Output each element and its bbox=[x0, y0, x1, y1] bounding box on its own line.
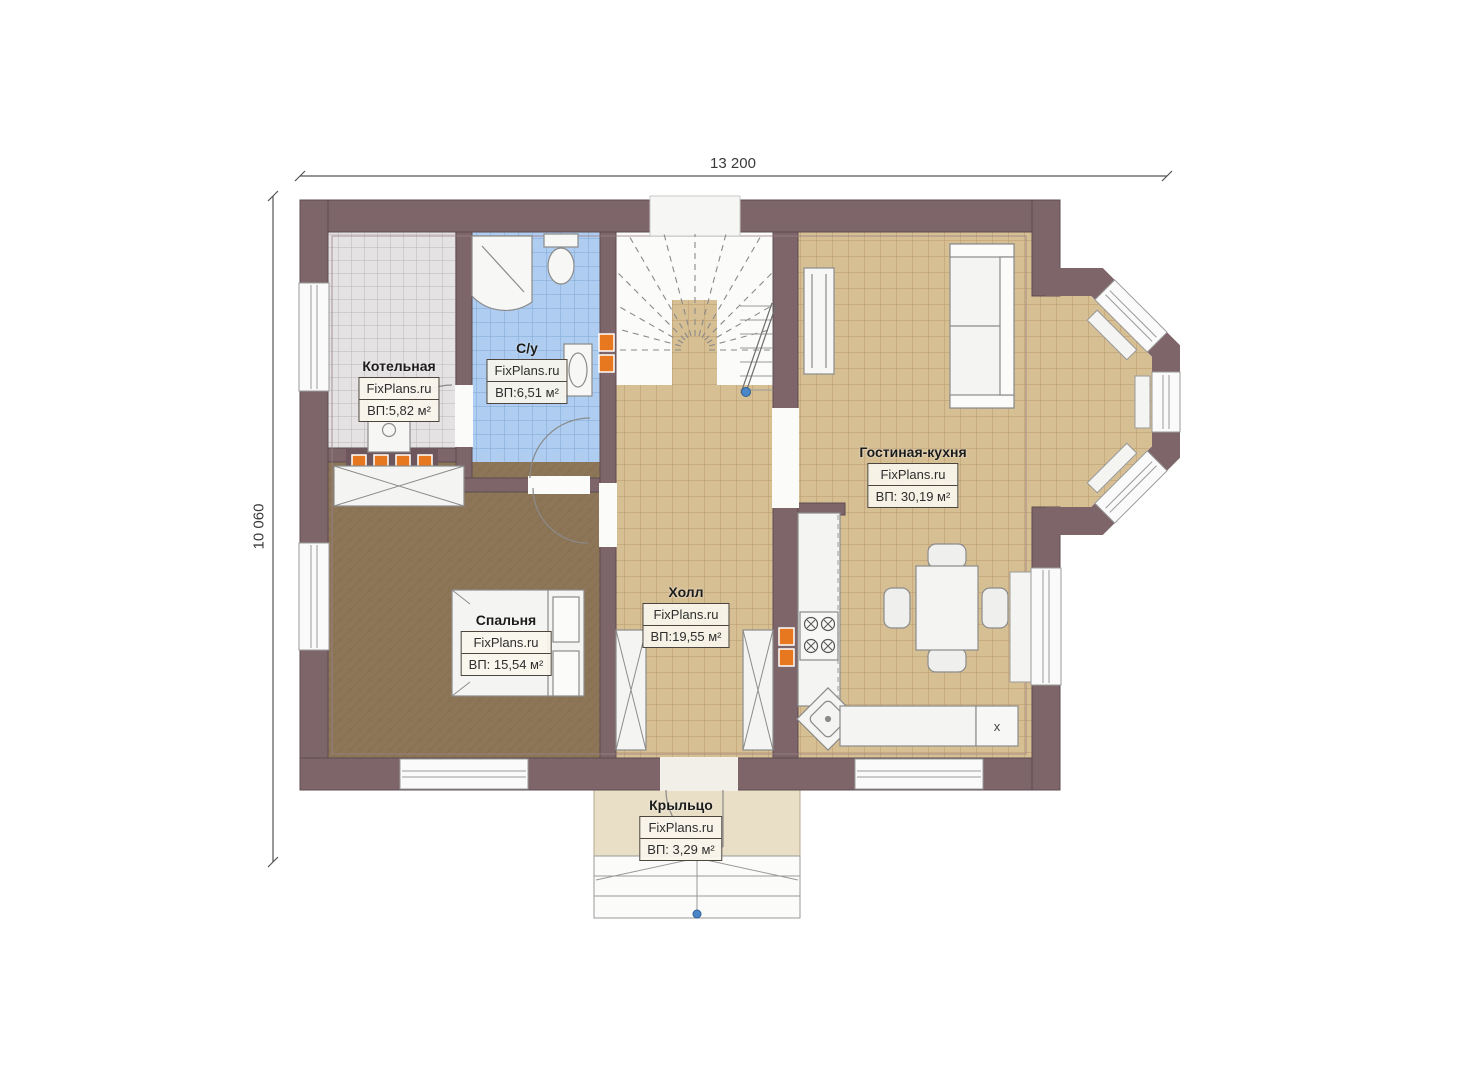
watermark-text: FixPlans.ru bbox=[487, 360, 566, 381]
room-title-porch: Крыльцо bbox=[639, 797, 722, 813]
shower-cabin bbox=[472, 236, 532, 310]
dimension-width-label: 13 200 bbox=[710, 155, 756, 172]
room-info-box-bedroom: FixPlans.ru ВП: 15,54 м² bbox=[461, 631, 552, 676]
table-top bbox=[916, 566, 978, 650]
door-opening-bedroom bbox=[599, 483, 617, 547]
room-label-boiler: Котельная FixPlans.ru ВП:5,82 м² bbox=[358, 358, 439, 422]
room-label-porch: Крыльцо FixPlans.ru ВП: 3,29 м² bbox=[639, 797, 722, 861]
watermark-text: FixPlans.ru bbox=[640, 817, 721, 838]
window-left-boiler bbox=[299, 283, 329, 391]
room-title-bedroom: Спальня bbox=[461, 612, 552, 628]
room-info-box-porch: FixPlans.ru ВП: 3,29 м² bbox=[639, 816, 722, 861]
room-info-box-hall: FixPlans.ru ВП:19,55 м² bbox=[642, 603, 729, 648]
room-label-bedroom: Спальня FixPlans.ru ВП: 15,54 м² bbox=[461, 612, 552, 676]
window-right-kitchen bbox=[1010, 568, 1061, 685]
passage-hall-living bbox=[772, 408, 799, 508]
wardrobe-bedroom bbox=[334, 466, 464, 506]
room-info-box-boiler: FixPlans.ru ВП:5,82 м² bbox=[358, 377, 439, 422]
kitchen-counter-left bbox=[798, 513, 840, 706]
chair-top bbox=[928, 544, 966, 568]
kitchen-counter-bottom bbox=[840, 706, 976, 746]
sofa bbox=[950, 244, 1014, 408]
room-area-value: ВП: 30,19 м² bbox=[869, 485, 958, 507]
watermark-text: FixPlans.ru bbox=[359, 378, 438, 399]
dimension-height-label: 10 060 bbox=[251, 492, 268, 562]
room-label-bathroom: С/у FixPlans.ru ВП:6,51 м² bbox=[486, 340, 567, 404]
room-area-value: ВП: 15,54 м² bbox=[462, 653, 551, 675]
room-area-value: ВП:5,82 м² bbox=[359, 399, 438, 421]
room-title-living-kitchen: Гостиная-кухня bbox=[859, 444, 966, 460]
washbasin bbox=[564, 344, 592, 396]
room-label-hall: Холл FixPlans.ru ВП:19,55 м² bbox=[642, 584, 729, 648]
door-opening-boiler bbox=[455, 385, 473, 447]
porch-steps bbox=[594, 856, 800, 918]
chair-bottom bbox=[928, 648, 966, 672]
porch-section-marker bbox=[693, 910, 701, 918]
wardrobe-hall-right bbox=[743, 630, 773, 750]
room-area-value: ВП:19,55 м² bbox=[643, 625, 728, 647]
door-opening-entrance bbox=[660, 757, 738, 791]
room-area-value: ВП: 3,29 м² bbox=[640, 838, 721, 860]
window-bottom-bedroom bbox=[400, 759, 528, 789]
stair-section-marker bbox=[742, 388, 751, 397]
radiator-living bbox=[804, 268, 834, 374]
window-left-bedroom bbox=[299, 543, 329, 650]
door-opening-bathroom bbox=[528, 476, 590, 494]
room-label-living-kitchen: Гостиная-кухня FixPlans.ru ВП: 30,19 м² bbox=[859, 444, 966, 508]
window-bay-east bbox=[1135, 372, 1180, 432]
watermark-text: FixPlans.ru bbox=[869, 464, 958, 485]
stove bbox=[800, 612, 838, 660]
chair-left bbox=[884, 588, 910, 628]
window-top-staircase bbox=[650, 196, 740, 236]
room-title-hall: Холл bbox=[642, 584, 729, 600]
room-title-boiler: Котельная bbox=[358, 358, 439, 374]
room-title-bathroom: С/у bbox=[486, 340, 567, 356]
watermark-text: FixPlans.ru bbox=[643, 604, 728, 625]
watermark-text: FixPlans.ru bbox=[462, 632, 551, 653]
room-info-box-living-kitchen: FixPlans.ru ВП: 30,19 м² bbox=[868, 463, 959, 508]
floor-plan-page: 13 200 10 060 Котельная FixPlans.ru ВП:5… bbox=[0, 0, 1474, 1080]
chair-right bbox=[982, 588, 1008, 628]
room-area-value: ВП:6,51 м² bbox=[487, 381, 566, 403]
window-bottom-kitchen bbox=[855, 759, 983, 789]
room-info-box-bathroom: FixPlans.ru ВП:6,51 м² bbox=[486, 359, 567, 404]
wardrobe-hall-left bbox=[616, 630, 646, 750]
kitchen-appliance-x-label: x bbox=[976, 706, 1018, 746]
